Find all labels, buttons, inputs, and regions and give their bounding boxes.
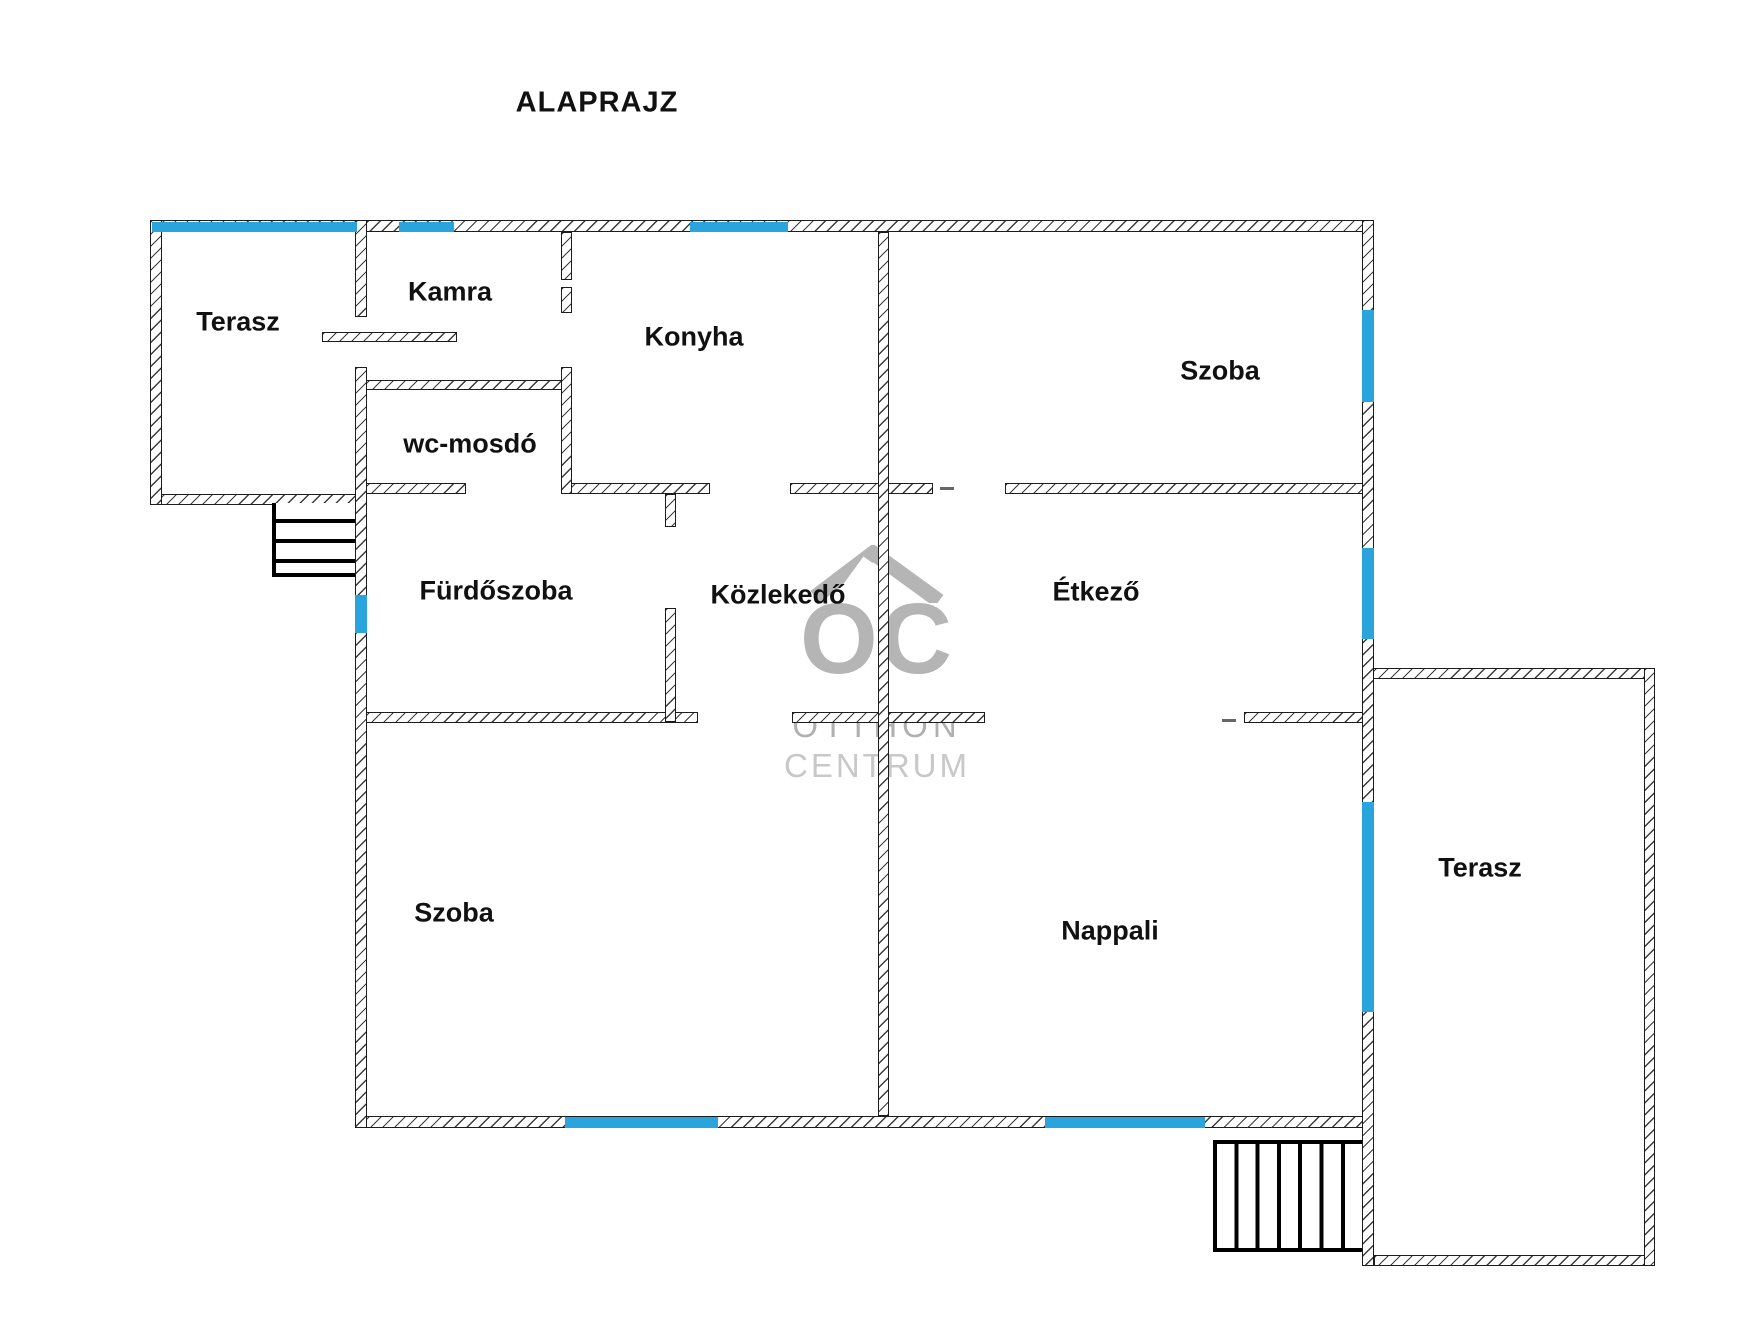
watermark-line2: CENTRUM [784,747,970,785]
wall-terasz-r-right [1644,668,1655,1266]
wall-mid-d [1005,483,1374,494]
page-title: ALAPRAJZ [516,87,679,120]
door-mark [940,487,954,490]
window-marker-konyha [690,222,788,232]
room-label-kozlekedo: Közlekedő [710,580,845,611]
wall-kamra-konyha-a [561,232,572,280]
room-label-nappali: Nappali [1061,916,1159,947]
window-marker-szoba-right [1362,310,1374,402]
room-label-szoba-top-right: Szoba [1180,356,1260,387]
door-mark [1222,719,1236,722]
room-label-kamra: Kamra [408,277,492,308]
room-label-wc-mosdo: wc-mosdó [403,429,537,460]
room-label-terasz-right: Terasz [1438,853,1522,884]
wall-terasz-r-top [1362,668,1655,679]
window-marker-terasz-top [152,222,357,232]
wall-furdoszoba-bottom [355,712,698,723]
window-marker-nappali-bottom [1045,1117,1205,1128]
wall-furdo-kozlekedo-b [665,608,676,722]
room-label-szoba-bottom-left: Szoba [414,898,494,929]
wall-house-bottom [355,1116,1374,1128]
window-marker-kamra [399,222,454,232]
window-marker-furdoszoba [355,595,367,633]
wall-wcmosdo-konyha [561,367,572,494]
wall-house-left-b [355,367,367,1128]
wall-kamra-bottom [322,332,457,342]
wall-terasz-r-bottom [1374,1255,1655,1266]
room-label-furdoszoba: Fürdőszoba [420,576,573,607]
stairs-top-left [272,503,355,577]
wall-etkezo-nappali [1244,712,1374,723]
wall-terasz-tl-left [150,220,162,505]
floor-plan: ALAPRAJZ OC OTTHON CENTRUM [0,0,1758,1334]
wall-kamra-konyha-b [561,287,572,313]
window-marker-szoba-bottom [565,1117,718,1128]
room-label-etkezo: Étkező [1052,577,1139,608]
wall-furdo-kozlekedo-a [665,494,676,527]
window-marker-etkezo-right [1362,548,1374,639]
room-label-terasz-top-left: Terasz [196,307,280,338]
wall-mid-a [355,483,466,494]
stairs-bottom-right [1213,1140,1362,1252]
wall-middle-vertical [878,232,889,1116]
wall-house-left-a [355,220,367,317]
window-marker-nappali-right [1362,802,1374,1012]
wall-wcmosdo-top [355,380,563,390]
wall-mid-c [790,483,933,494]
wall-mid-b [561,483,710,494]
room-label-konyha: Konyha [644,322,743,353]
